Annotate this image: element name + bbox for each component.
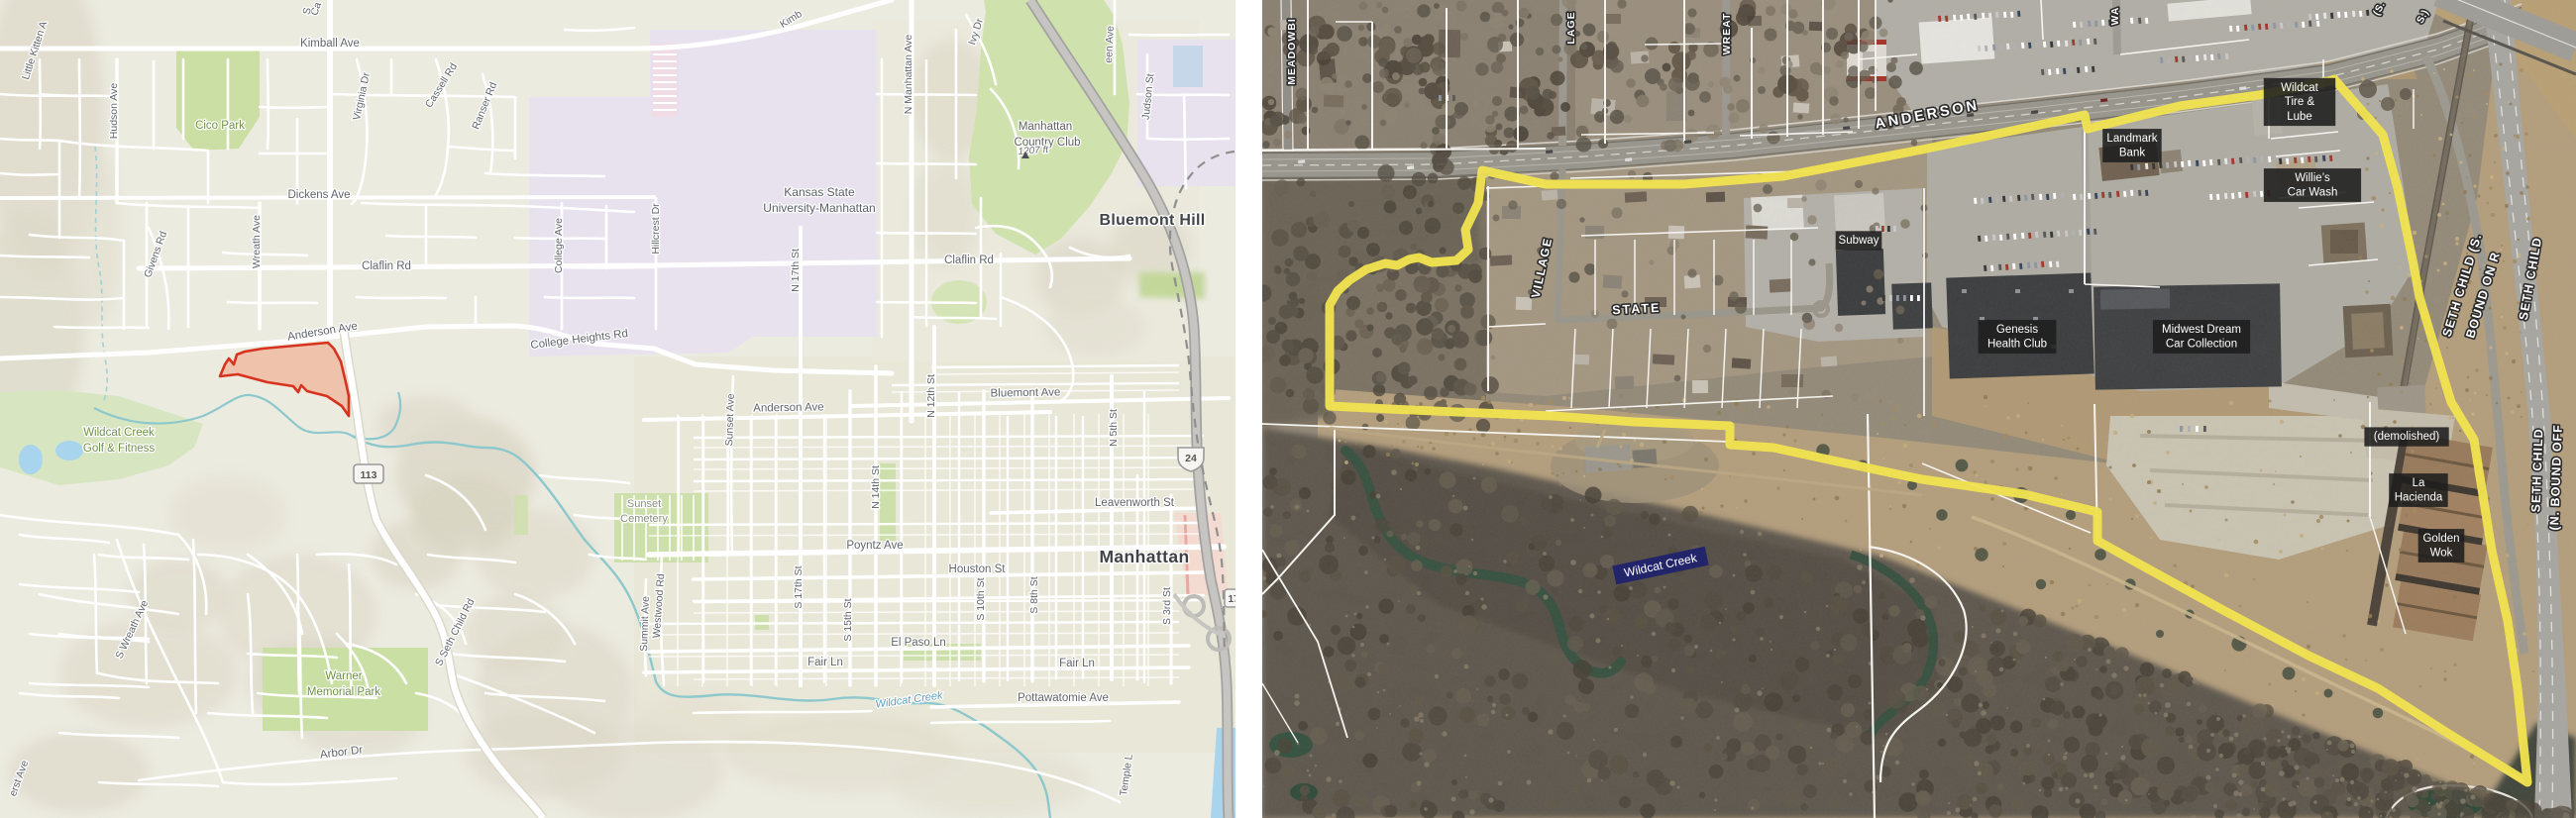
svg-text:Fair Ln: Fair Ln [1059, 658, 1095, 669]
svg-text:Landmark: Landmark [2106, 133, 2157, 145]
svg-text:LAGE: LAGE [1565, 11, 1577, 44]
svg-text:S 15th St: S 15th St [842, 598, 854, 641]
svg-text:24: 24 [1185, 453, 1197, 464]
svg-text:Manhattan: Manhattan [1019, 121, 1072, 133]
svg-text:Bluemont Hill: Bluemont Hill [1099, 212, 1205, 229]
svg-text:N 14th St: N 14th St [870, 465, 882, 509]
svg-text:Lube: Lube [2287, 111, 2312, 123]
svg-text:Sunset: Sunset [627, 498, 661, 510]
svg-text:S 17th St: S 17th St [793, 565, 805, 608]
svg-text:Manhattan: Manhattan [1099, 547, 1189, 566]
svg-text:Wreath Ave: Wreath Ave [251, 215, 263, 268]
svg-text:S 8th St: S 8th St [1028, 576, 1040, 613]
svg-text:WA: WA [2109, 7, 2121, 26]
svg-text:S 10th St: S 10th St [975, 577, 987, 620]
svg-text:Claflin Rd: Claflin Rd [362, 260, 411, 272]
svg-text:Car Collection: Car Collection [2166, 339, 2237, 351]
svg-text:Genesis: Genesis [1996, 324, 2038, 336]
svg-text:College Ave: College Ave [553, 218, 565, 273]
svg-text:Cico Park: Cico Park [195, 120, 245, 132]
svg-text:Anderson Ave: Anderson Ave [753, 401, 824, 414]
svg-text:N Manhattan Ave: N Manhattan Ave [903, 35, 914, 115]
svg-text:Wok: Wok [2430, 548, 2453, 560]
svg-text:Bluemont Ave: Bluemont Ave [990, 386, 1060, 399]
svg-text:N 17th St: N 17th St [790, 249, 802, 292]
svg-text:Kimball Ave: Kimball Ave [300, 38, 360, 50]
svg-text:Health Club: Health Club [1987, 339, 2047, 351]
svg-text:Tire &: Tire & [2285, 96, 2315, 108]
svg-text:113: 113 [361, 469, 377, 481]
svg-text:Golf & Fitness: Golf & Fitness [83, 443, 155, 455]
svg-text:Leavenworth St: Leavenworth St [1095, 497, 1175, 509]
svg-text:La: La [2413, 477, 2425, 489]
svg-text:Subway: Subway [1839, 235, 1879, 247]
svg-text:S 3rd St: S 3rd St [1161, 587, 1173, 625]
svg-text:Hillcrest Dr: Hillcrest Dr [650, 203, 662, 255]
svg-text:Hudson Ave: Hudson Ave [108, 83, 120, 140]
svg-text:Pottawatomie Ave: Pottawatomie Ave [1018, 692, 1109, 704]
svg-text:N 5th St: N 5th St [1108, 409, 1120, 447]
svg-text:Summit Ave: Summit Ave [638, 596, 652, 652]
svg-text:Warner: Warner [325, 670, 362, 682]
svg-text:Car Wash: Car Wash [2288, 187, 2338, 199]
svg-text:een Ave: een Ave [1103, 26, 1117, 63]
svg-text:Sunset Ave: Sunset Ave [723, 393, 737, 446]
svg-text:1207 ft: 1207 ft [1018, 145, 1049, 157]
svg-text:Wildcat Creek: Wildcat Creek [83, 427, 155, 439]
svg-text:STATE: STATE [1612, 301, 1662, 318]
svg-text:Houston St: Houston St [949, 563, 1007, 575]
svg-text:SETH CHILD: SETH CHILD [2529, 428, 2546, 512]
svg-text:Wildcat: Wildcat [2281, 82, 2319, 94]
svg-text:Willie’s: Willie’s [2295, 172, 2330, 184]
svg-text:Golden: Golden [2422, 533, 2459, 545]
svg-text:Hacienda: Hacienda [2395, 492, 2443, 504]
svg-text:Claflin Rd: Claflin Rd [944, 255, 994, 266]
svg-text:N 12th St: N 12th St [925, 374, 937, 418]
svg-text:Kansas State: Kansas State [784, 185, 855, 199]
svg-text:Dickens Ave: Dickens Ave [287, 189, 350, 201]
svg-text:Midwest Dream: Midwest Dream [2162, 324, 2241, 336]
svg-text:Fair Ln: Fair Ln [807, 657, 843, 668]
svg-text:(demolished): (demolished) [2374, 431, 2440, 443]
svg-text:University-Manhattan: University-Manhattan [763, 201, 875, 215]
svg-text:Poyntz Ave: Poyntz Ave [846, 540, 903, 552]
svg-text:Bank: Bank [2119, 148, 2145, 159]
svg-text:El Paso Ln: El Paso Ln [891, 637, 946, 649]
svg-text:MEADOWBI: MEADOWBI [1286, 18, 1298, 85]
svg-text:Cemetery: Cemetery [620, 513, 668, 525]
svg-text:WREAT: WREAT [1721, 13, 1733, 55]
svg-text:Memorial Park: Memorial Park [307, 686, 380, 698]
